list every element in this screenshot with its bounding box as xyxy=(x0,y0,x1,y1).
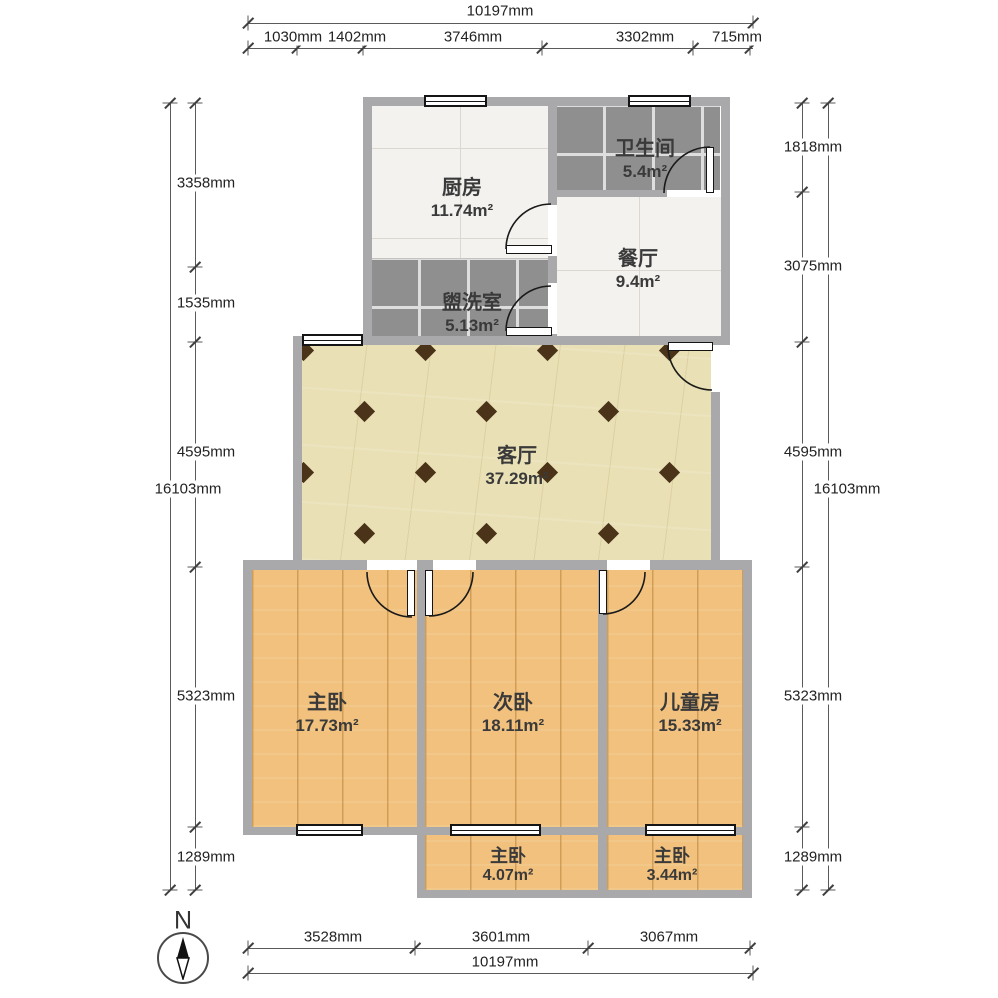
floor-diamond-ornament xyxy=(353,522,374,543)
wall-bathroom-dining xyxy=(557,190,667,197)
dim-line-bottom-segments xyxy=(248,948,753,949)
room-label-balcony-right: 主卧 3.44m² xyxy=(647,846,698,886)
room-area-balcony-right: 3.44m² xyxy=(647,867,698,886)
floor-plan: 厨房 11.74m² 卫生间 5.4m² 餐厅 9.4m² 盥洗室 5.13m²… xyxy=(0,0,998,998)
room-name-kitchen: 厨房 xyxy=(431,177,493,201)
room-name-dining: 餐厅 xyxy=(616,248,660,272)
wall-bedroom-left xyxy=(243,560,252,835)
room-area-master: 17.73m² xyxy=(295,716,358,736)
floor-diamond-ornament xyxy=(597,522,618,543)
room-name-bathroom: 卫生间 xyxy=(615,138,675,162)
wall-upper-right xyxy=(721,97,730,345)
dim-line-top-segments xyxy=(248,48,753,49)
dim-top-seg1: 1030mm xyxy=(262,29,324,46)
room-area-second: 18.11m² xyxy=(482,716,544,736)
dim-left-total: 16103mm xyxy=(153,481,224,498)
dim-right-seg5: 1289mm xyxy=(782,849,844,866)
floor-diamond-ornament xyxy=(302,461,314,482)
floor-diamond-ornament xyxy=(658,461,679,482)
wall-balcony-right xyxy=(743,835,752,890)
dim-line-top-total xyxy=(248,23,753,24)
room-area-kitchen: 11.74m² xyxy=(431,201,493,221)
room-label-washroom: 盥洗室 5.13m² xyxy=(442,292,502,336)
second-door-leaf xyxy=(425,570,433,616)
wall-balcony-bottom xyxy=(417,890,752,898)
floor-diamond-ornament xyxy=(353,400,374,421)
room-area-kids: 15.33m² xyxy=(658,716,721,736)
kids-door-leaf xyxy=(599,570,607,614)
room-label-master: 主卧 17.73m² xyxy=(295,692,358,736)
wall-upper-left xyxy=(363,97,372,345)
dim-left-seg4: 5323mm xyxy=(175,688,237,705)
wall-bedroom-right xyxy=(743,560,752,835)
kitchen-door-leaf xyxy=(506,245,552,254)
dim-left-seg2: 1535mm xyxy=(175,295,237,312)
wall-kitchen-dining-2 xyxy=(548,256,557,283)
compass-needle-icon xyxy=(174,936,192,980)
dim-line-right-segments xyxy=(802,103,803,890)
floor-diamond-ornament xyxy=(414,461,435,482)
room-name-living: 客厅 xyxy=(485,445,548,469)
room-name-kids: 儿童房 xyxy=(658,692,721,716)
room-area-bathroom: 5.4m² xyxy=(615,162,675,182)
dim-left-seg1: 3358mm xyxy=(175,175,237,192)
floor-diamond-ornament xyxy=(302,345,314,361)
room-area-living: 37.29m² xyxy=(485,469,548,489)
dim-bottom-seg2: 3601mm xyxy=(470,929,532,946)
wall-bedroom-top-1 xyxy=(243,560,367,570)
floor-diamond-ornament xyxy=(414,345,435,361)
room-name-balcony-right: 主卧 xyxy=(647,846,698,867)
wall-living-right xyxy=(711,392,720,570)
bathroom-door-leaf xyxy=(706,147,714,193)
dim-top-seg3: 3746mm xyxy=(442,29,504,46)
room-label-kitchen: 厨房 11.74m² xyxy=(431,177,493,221)
dim-left-seg5: 1289mm xyxy=(175,849,237,866)
dim-bottom-total: 10197mm xyxy=(470,954,541,971)
floor-diamond-ornament xyxy=(475,522,496,543)
dim-bottom-seg1: 3528mm xyxy=(302,929,364,946)
dim-right-seg4: 5323mm xyxy=(782,688,844,705)
room-name-balcony-left: 主卧 xyxy=(483,846,534,867)
kids-balcony-window xyxy=(645,824,736,836)
wall-bedroom-top-2 xyxy=(417,560,433,570)
living-window xyxy=(302,334,363,346)
dim-left-seg3: 4595mm xyxy=(175,444,237,461)
bathroom-window xyxy=(628,95,691,107)
room-name-washroom: 盥洗室 xyxy=(442,292,502,316)
room-area-balcony-left: 4.07m² xyxy=(483,867,534,886)
dim-right-seg1: 1818mm xyxy=(782,139,844,156)
dim-top-seg2: 1402mm xyxy=(326,29,388,46)
room-name-second: 次卧 xyxy=(482,692,544,716)
dim-bottom-seg3: 3067mm xyxy=(638,929,700,946)
room-name-master: 主卧 xyxy=(295,692,358,716)
wall-balcony-mid xyxy=(598,835,607,890)
dim-right-seg3: 4595mm xyxy=(782,444,844,461)
room-label-second: 次卧 18.11m² xyxy=(482,692,544,736)
dim-top-total: 10197mm xyxy=(465,3,536,20)
room-label-bathroom: 卫生间 5.4m² xyxy=(615,138,675,182)
compass-needle-north-half xyxy=(177,937,189,958)
wall-kitchen-dining-1 xyxy=(548,106,557,205)
wall-living-left xyxy=(293,336,302,570)
wall-balcony-left xyxy=(417,835,425,890)
compass-needle-south-half xyxy=(177,958,189,979)
master-window xyxy=(296,824,363,836)
room-label-living: 客厅 37.29m² xyxy=(485,445,548,489)
master-door-leaf xyxy=(407,570,415,616)
dim-right-total: 16103mm xyxy=(812,481,883,498)
floor-diamond-ornament xyxy=(536,345,557,361)
room-label-dining: 餐厅 9.4m² xyxy=(616,248,660,292)
room-area-dining: 9.4m² xyxy=(616,272,660,292)
floor-diamond-ornament xyxy=(597,400,618,421)
second-balcony-window xyxy=(450,824,541,836)
room-area-washroom: 5.13m² xyxy=(442,316,502,336)
washroom-door-leaf xyxy=(506,327,552,336)
kitchen-window xyxy=(424,95,487,107)
dim-right-seg2: 3075mm xyxy=(782,258,844,275)
dim-line-bottom-total xyxy=(248,973,753,974)
wall-bedroom-top-4 xyxy=(650,560,752,570)
dim-top-seg5: 715mm xyxy=(710,29,764,46)
entrance-door-leaf xyxy=(668,342,713,351)
wall-bedroom-top-3 xyxy=(476,560,607,570)
dim-top-seg4: 3302mm xyxy=(614,29,676,46)
room-label-kids: 儿童房 15.33m² xyxy=(658,692,721,736)
floor-diamond-ornament xyxy=(475,400,496,421)
room-label-balcony-left: 主卧 4.07m² xyxy=(483,846,534,886)
wall-master-second xyxy=(417,570,425,827)
